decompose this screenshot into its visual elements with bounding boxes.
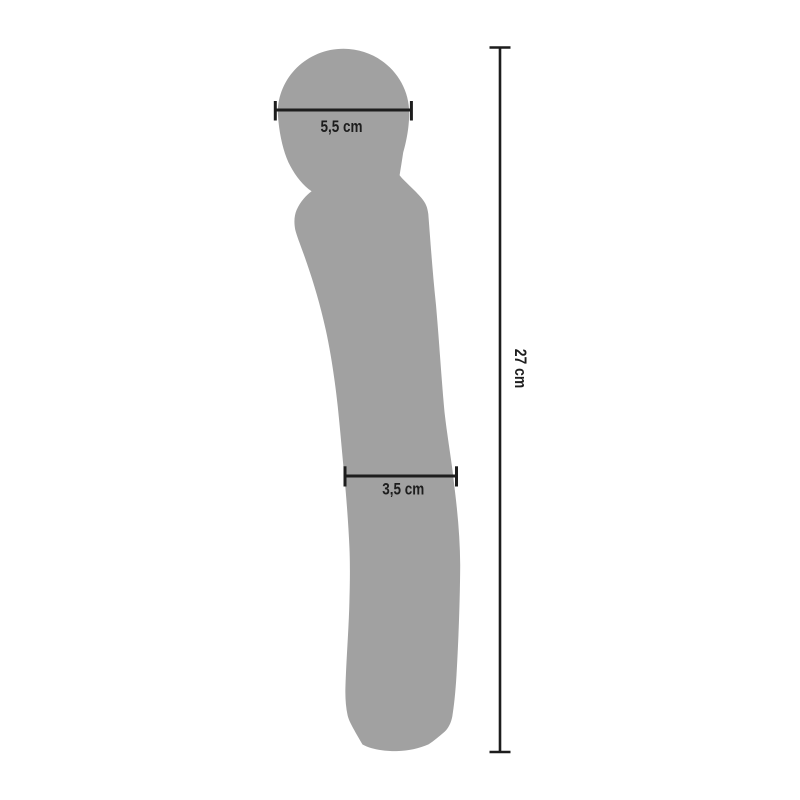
svg-text:5,5 cm: 5,5 cm (321, 118, 363, 136)
svg-text:3,5 cm: 3,5 cm (382, 481, 424, 499)
svg-text:27 cm: 27 cm (511, 349, 530, 389)
